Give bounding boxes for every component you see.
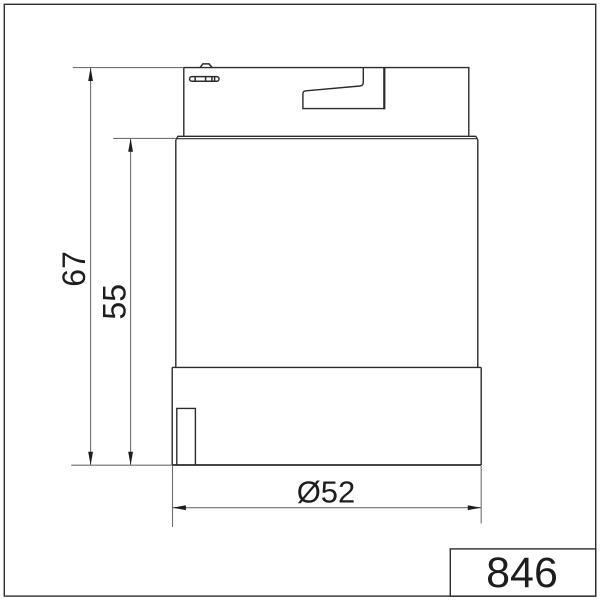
svg-text:55: 55 [97, 284, 133, 320]
svg-text:Ø52: Ø52 [297, 474, 356, 509]
svg-text:846: 846 [486, 549, 558, 597]
svg-text:67: 67 [56, 251, 92, 287]
